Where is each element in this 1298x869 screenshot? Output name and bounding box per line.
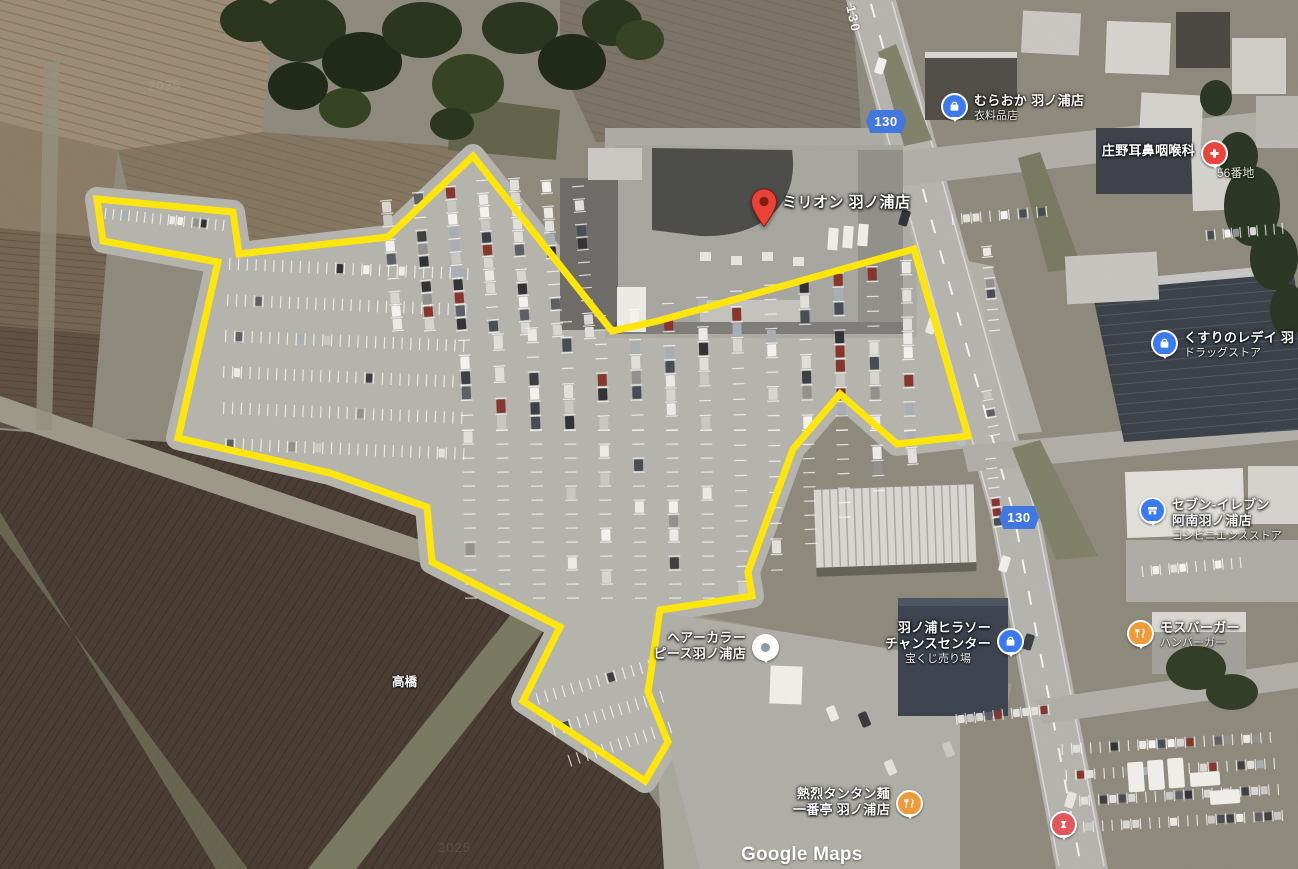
poi-name: くすりのレデイ 羽 [1184,330,1294,346]
image-grain [0,0,1298,869]
poi-category: コンビニエンスストア [1172,530,1282,543]
poi-name-line1: ヘアーカラー [667,630,746,646]
shrine-icon [1050,811,1077,838]
poi-name-line1: セブン-イレブン [1172,497,1282,513]
searched-place-label[interactable]: ミリオン 羽ノ浦店 [782,194,911,212]
red-map-pin-icon [750,188,778,228]
poi-ramen[interactable]: 熱烈タンタン麺 一番亭 羽ノ浦店 [793,786,923,818]
restaurant-fork-knife-icon [1127,620,1154,647]
poi-name: むらおか 羽ノ浦店 [974,93,1084,109]
poi-name-line2: ピース羽ノ浦店 [654,646,746,662]
poi-seven-eleven[interactable]: セブン-イレブン 阿南羽ノ浦店 コンビニエンスストア [1139,497,1282,543]
map-canvas[interactable]: ミリオン 羽ノ浦店 むらおか 羽ノ浦店 衣料品店 庄野耳鼻咽喉科 56番地 くす… [0,0,1298,869]
poi-name-line2: 一番亭 羽ノ浦店 [793,802,890,818]
poi-kusuri-lady[interactable]: くすりのレデイ 羽 ドラッグストア [1151,330,1294,360]
poi-name-line1: 羽ノ浦ヒラソー [898,620,991,636]
place-pin[interactable] [750,188,778,228]
poi-name: 庄野耳鼻咽喉科 [1102,143,1195,159]
satellite-imagery[interactable] [0,0,1298,869]
bridge-label: 高橋 [392,671,417,690]
google-maps-watermark: Google Maps [741,844,863,866]
poi-category: 衣料品店 [974,110,1084,123]
poi-mos-burger[interactable]: モスバーガー ハンバーガー [1127,620,1240,650]
poi-category: ドラッグストア [1184,347,1294,360]
poi-category: ハンバーガー [1160,637,1240,650]
route-130-shield[interactable]: 130 [999,506,1039,529]
lottery-shop-bag-icon [997,628,1024,655]
drugstore-bag-icon [1151,330,1178,357]
route-number: 130 [1007,510,1030,525]
poi-hiraso-chance-center[interactable]: 羽ノ浦ヒラソー チャンスセンター 宝くじ売り場 [885,620,1024,666]
route-number: 130 [874,114,897,129]
restaurant-fork-knife-icon [896,790,923,817]
convenience-store-icon [1139,497,1166,524]
poi-name-line1: 熱烈タンタン麺 [797,786,890,802]
imagery-watermark: 2025 [148,77,181,93]
generic-place-dot-icon [752,634,779,661]
poi-name-line2: 阿南羽ノ浦店 [1172,513,1282,529]
poi-shrine-pin[interactable] [1050,811,1077,838]
poi-shono-clinic[interactable]: 庄野耳鼻咽喉科 [1102,140,1228,167]
hospital-cross-icon [1201,140,1228,167]
poi-muraoka[interactable]: むらおか 羽ノ浦店 衣料品店 [941,93,1084,123]
poi-name-line2: チャンスセンター [885,636,991,652]
route-130-shield[interactable]: 130 [866,110,906,133]
poi-name: モスバーガー [1160,620,1240,636]
place-name: ミリオン 羽ノ浦店 [782,194,911,212]
poi-category: 宝くじ売り場 [905,653,971,666]
imagery-watermark: 2025 [438,840,471,855]
clothing-store-icon [941,93,968,120]
poi-hair-salon[interactable]: ヘアーカラー ピース羽ノ浦店 [654,630,779,662]
